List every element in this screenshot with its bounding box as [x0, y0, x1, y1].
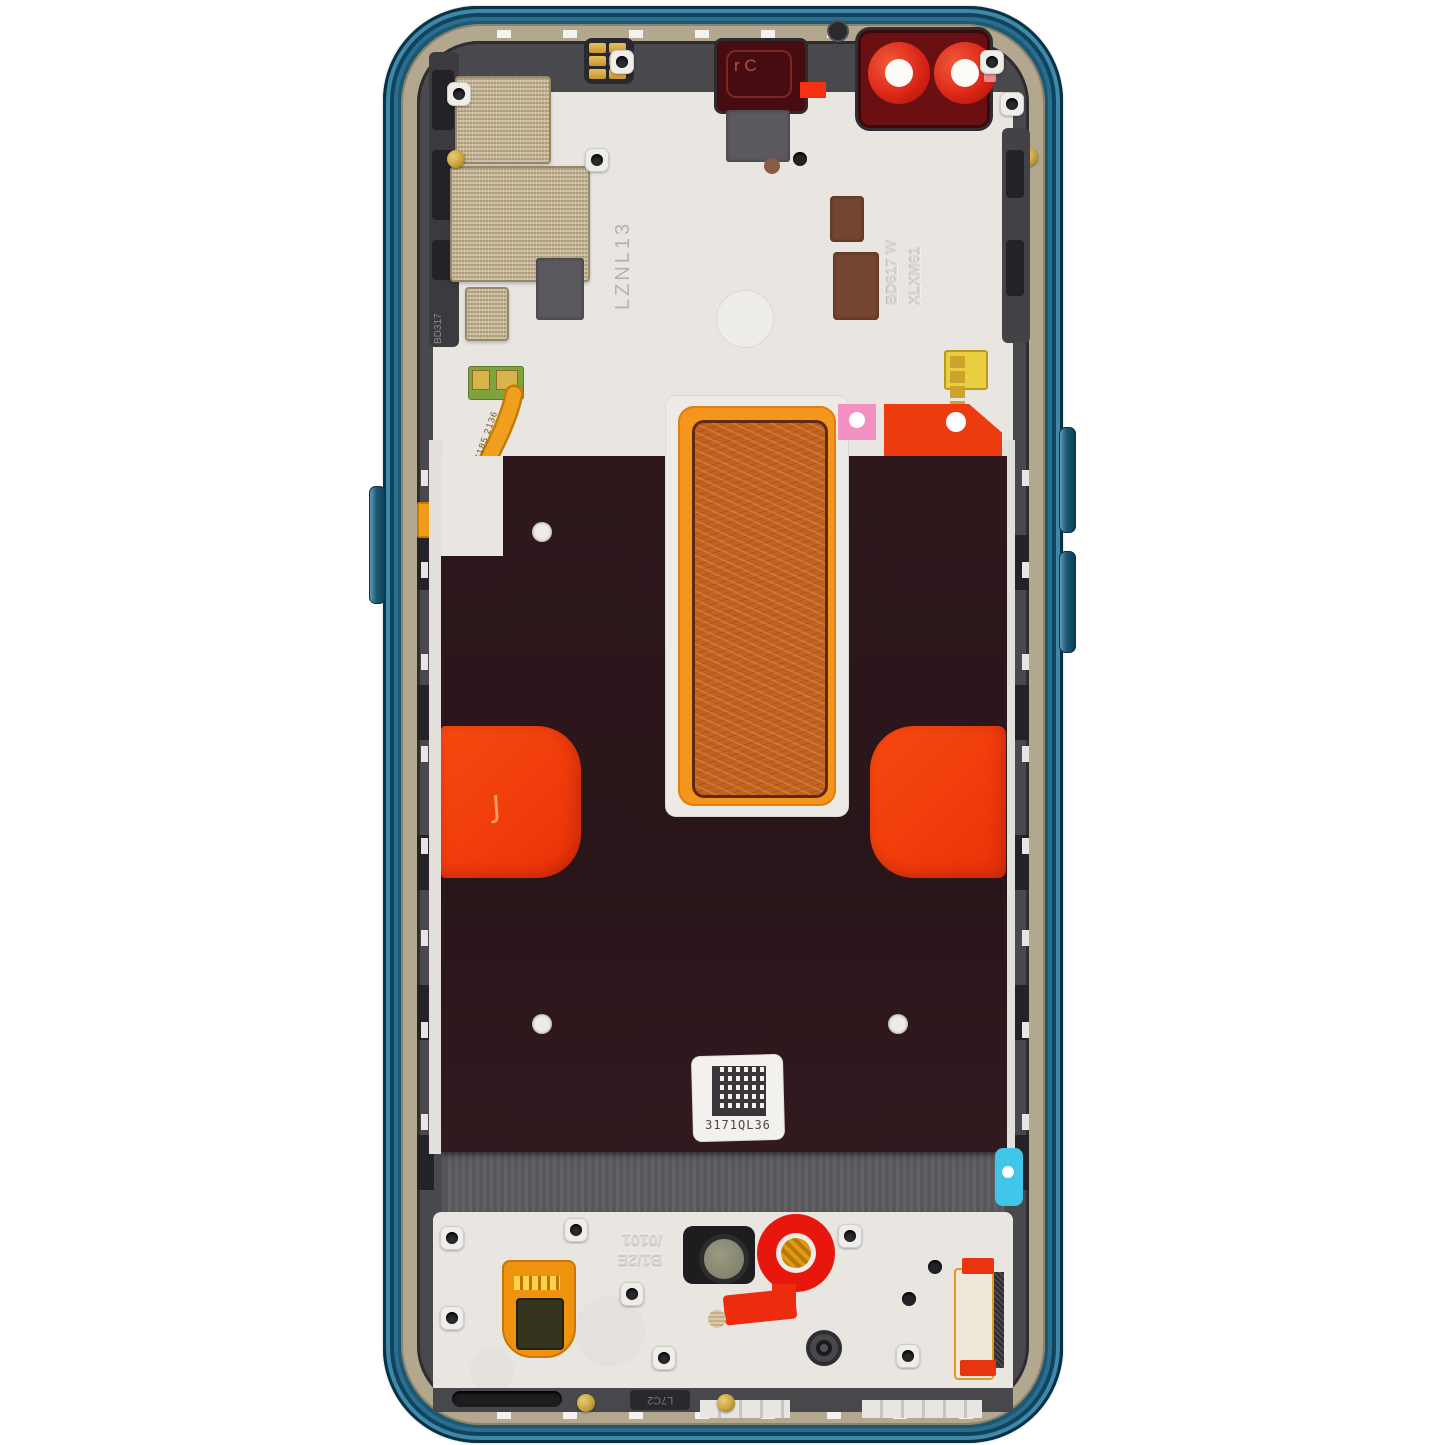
embossed-code-right-line2: XLXM61: [907, 155, 924, 305]
screw-post: [1000, 92, 1024, 116]
gold-screw: [447, 150, 465, 168]
graphite-patch: [726, 110, 790, 162]
product-photo: BD317 r C LZNL13 BD617 W XLXM61: [0, 0, 1445, 1445]
embossed-code-right-line1: BD617 W: [884, 155, 901, 305]
molded-circle: [716, 290, 774, 348]
rail-code-plate: L7C2: [630, 1390, 690, 1410]
panel-hole: [888, 1014, 908, 1034]
graphite-patch: [536, 258, 584, 320]
red-adhesive-hole: [946, 412, 966, 432]
flex-ic-chip: [516, 1298, 564, 1350]
right-volume-button: [1059, 427, 1076, 533]
copper-dot: [764, 158, 780, 174]
microphone-hole: [827, 20, 849, 42]
screw-post: [980, 50, 1004, 74]
gold-contact-pad-right: [944, 350, 988, 390]
red-adhesive-tab: [960, 1360, 996, 1376]
panel-hole: [532, 522, 552, 542]
screw-post: [838, 1224, 862, 1248]
barcode-text: 3171QL36: [695, 1118, 781, 1132]
flex-solder-pads: [514, 1276, 560, 1290]
screw-post: [440, 1306, 464, 1330]
emi-mesh-shield-tiny: [465, 287, 509, 341]
adhesive-patch-right: [870, 726, 1006, 878]
embossed-code-right: BD617 W XLXM61: [884, 155, 924, 305]
flash-window-mark: r C: [734, 56, 757, 76]
screw-post: [447, 82, 471, 106]
panel-hole: [532, 1014, 552, 1034]
rubber-grommet: [806, 1330, 842, 1366]
screw-post: [896, 1344, 920, 1368]
copper-tape-patch: [833, 252, 879, 320]
thermal-foil-copper: [692, 420, 828, 798]
copper-tape-patch: [830, 196, 864, 242]
bottom-white-tab: [700, 1400, 790, 1418]
alignment-hole: [793, 152, 807, 166]
front-camera-lens: [699, 1234, 749, 1284]
camera-lens-opening-1: [885, 59, 913, 87]
red-adhesive-tab: [800, 82, 826, 98]
screw-post: [652, 1346, 676, 1370]
alignment-hole: [902, 1292, 916, 1306]
gold-screw: [717, 1394, 735, 1412]
bottom-white-tab: [862, 1400, 982, 1418]
right-rail-dashes: [1022, 470, 1029, 1170]
screw-post: [620, 1282, 644, 1306]
embossed-code-left: BD317: [433, 288, 444, 344]
screw-post: [564, 1218, 588, 1242]
pink-tab-hole: [849, 412, 865, 428]
alignment-hole: [928, 1260, 942, 1274]
gold-flex-through-hole: [781, 1238, 811, 1268]
antenna-slot: [1006, 240, 1024, 296]
screw-post: [440, 1226, 464, 1250]
screw-post: [585, 148, 609, 172]
gold-screw: [577, 1394, 595, 1412]
molded-circle: [470, 1348, 514, 1392]
screw-post: [610, 50, 634, 74]
loudspeaker-slot: [452, 1391, 562, 1407]
right-power-button: [1059, 551, 1076, 653]
red-adhesive-tab: [962, 1258, 994, 1274]
left-rail-dashes: [421, 470, 428, 1170]
cyan-tab-hole: [1002, 1166, 1014, 1178]
bottom-adhesive-band: [441, 1152, 1007, 1214]
camera-lens-opening-2: [951, 59, 979, 87]
chassis-notch: [441, 456, 503, 556]
panel-code-print: LZNL13: [612, 190, 635, 310]
antenna-slot: [1006, 150, 1024, 198]
mesh-dot: [708, 1310, 726, 1328]
left-side-button: [369, 486, 386, 604]
molded-circle: [575, 1296, 645, 1366]
bottom-rail-code: L7C2: [647, 1394, 673, 1406]
adhesive-patch-left: [441, 726, 581, 878]
datamatrix-code: [712, 1066, 766, 1116]
